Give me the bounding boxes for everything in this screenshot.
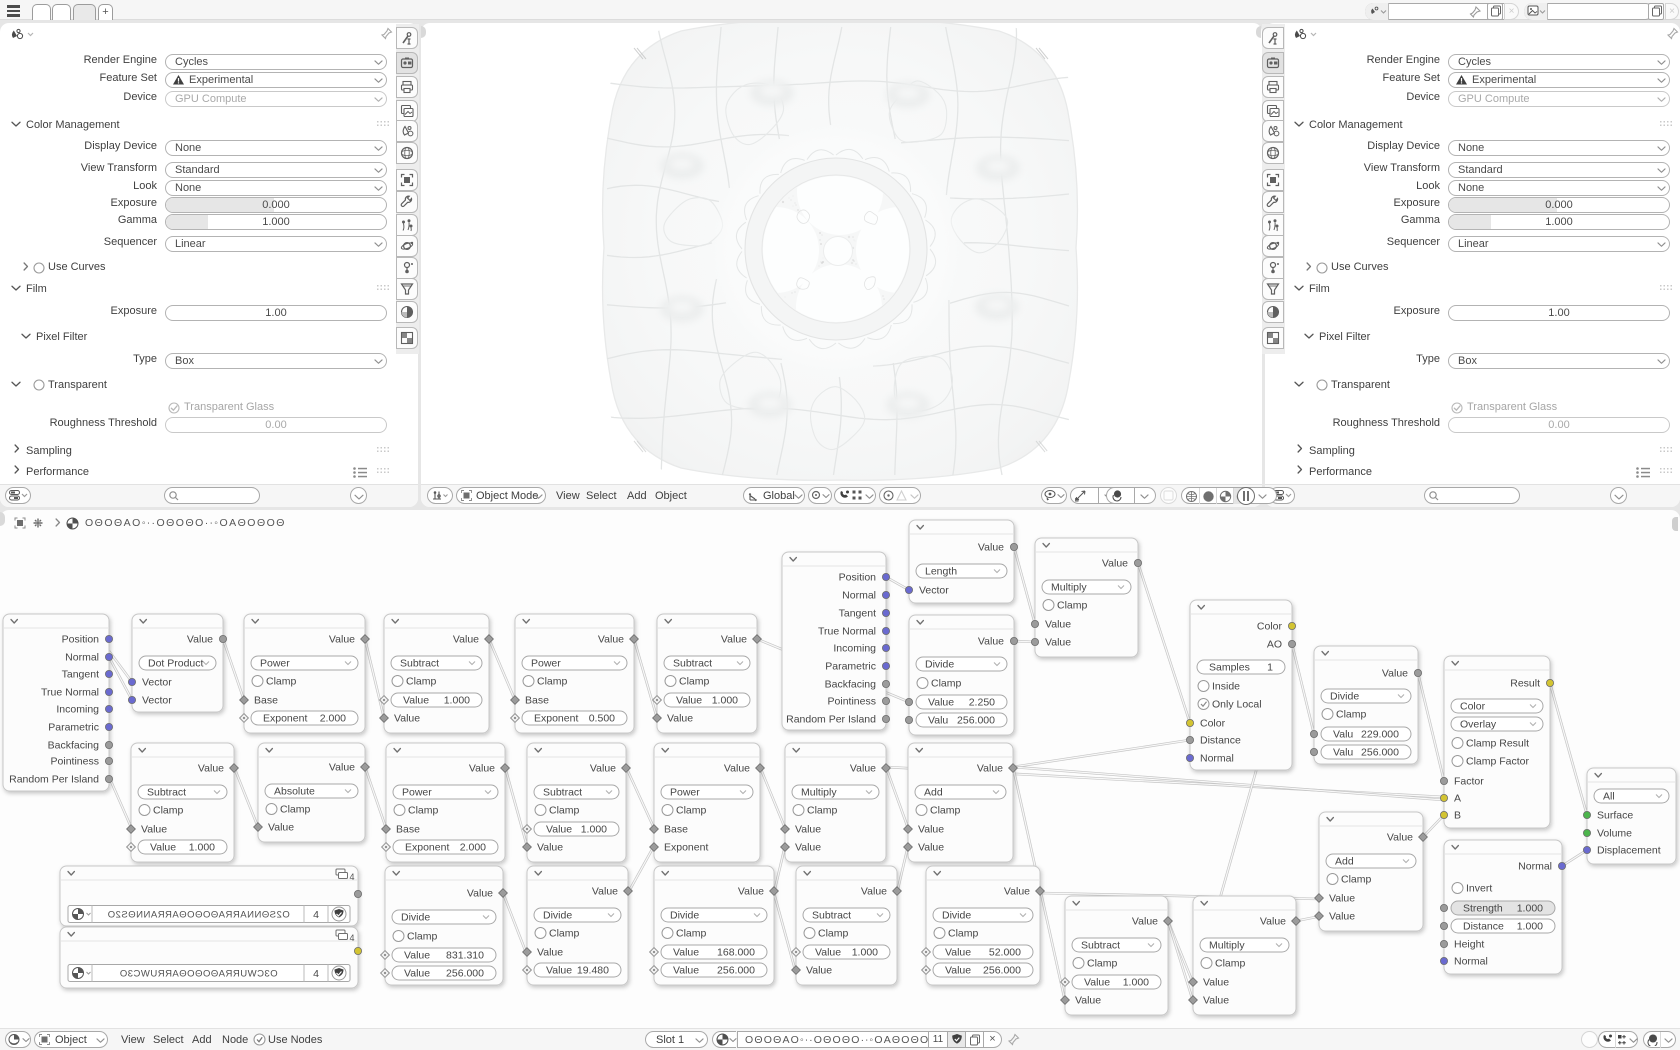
svg-text:Multiply: Multiply — [801, 787, 837, 799]
svg-text:Exponent: Exponent — [534, 713, 578, 725]
svg-text:4: 4 — [350, 933, 355, 943]
svg-text:Value: Value — [187, 634, 213, 646]
svg-text:Clamp: Clamp — [406, 676, 437, 688]
svg-text:Vector: Vector — [142, 695, 172, 707]
svg-text:Subtract: Subtract — [1081, 940, 1120, 952]
svg-text:1.000: 1.000 — [581, 824, 607, 836]
svg-text:Only Local: Only Local — [1212, 699, 1262, 711]
svg-text:Value: Value — [721, 634, 747, 646]
svg-text:2.000: 2.000 — [460, 842, 486, 854]
svg-text:Value: Value — [676, 695, 702, 707]
svg-text:Value: Value — [918, 842, 944, 854]
svg-text:Value: Value — [537, 947, 563, 959]
svg-text:Value: Value — [1382, 668, 1408, 680]
svg-text:Value: Value — [403, 695, 429, 707]
svg-text:Value: Value — [861, 886, 887, 898]
svg-text:Distance: Distance — [1463, 921, 1504, 933]
svg-text:Inside: Inside — [1212, 681, 1240, 693]
svg-text:Clamp: Clamp — [818, 928, 849, 940]
svg-text:2.000: 2.000 — [320, 713, 346, 725]
svg-text:Divide: Divide — [401, 912, 430, 924]
svg-text:Value: Value — [1075, 995, 1101, 1007]
svg-text:Value: Value — [1329, 893, 1355, 905]
svg-text:4: 4 — [350, 872, 355, 882]
svg-text:Vector: Vector — [919, 585, 949, 597]
svg-text:Value: Value — [815, 947, 841, 959]
svg-text:Subtract: Subtract — [147, 787, 186, 799]
svg-text:Power: Power — [402, 787, 432, 799]
svg-text:Clamp Factor: Clamp Factor — [1466, 756, 1530, 768]
svg-text:Value: Value — [977, 763, 1003, 775]
svg-text:Strength: Strength — [1463, 903, 1503, 915]
svg-text:831.310: 831.310 — [446, 950, 484, 962]
svg-text:Value: Value — [546, 965, 572, 977]
svg-text:Absolute: Absolute — [274, 786, 315, 798]
svg-text:Value: Value — [404, 968, 430, 980]
svg-text:Overlay: Overlay — [1460, 719, 1497, 731]
svg-text:Clamp: Clamp — [1087, 958, 1118, 970]
svg-text:Value: Value — [546, 824, 572, 836]
svg-text:Value: Value — [1329, 911, 1355, 923]
svg-text:Valu: Valu — [1333, 729, 1353, 741]
svg-text:1.000: 1.000 — [712, 695, 738, 707]
svg-text:Value: Value — [453, 634, 479, 646]
svg-text:Power: Power — [260, 658, 290, 670]
svg-text:Color: Color — [1257, 621, 1283, 633]
svg-text:Value: Value — [850, 763, 876, 775]
svg-text:Exponent: Exponent — [405, 842, 449, 854]
svg-text:Vector: Vector — [142, 677, 172, 689]
svg-text:AO: AO — [1267, 639, 1282, 651]
svg-text:Invert: Invert — [1466, 883, 1492, 895]
svg-text:Incoming: Incoming — [833, 643, 876, 655]
svg-text:Divide: Divide — [925, 659, 954, 671]
svg-text:Height: Height — [1454, 939, 1484, 951]
svg-text:Clamp: Clamp — [1336, 709, 1367, 721]
svg-text:Value: Value — [795, 824, 821, 836]
svg-text:256.000: 256.000 — [717, 965, 755, 977]
svg-text:Value: Value — [329, 634, 355, 646]
svg-text:Normal: Normal — [842, 590, 876, 602]
svg-text:Add: Add — [924, 787, 943, 799]
svg-text:Position: Position — [839, 572, 877, 584]
svg-text:Clamp: Clamp — [266, 676, 297, 688]
svg-text:256.000: 256.000 — [446, 968, 484, 980]
svg-text:Clamp: Clamp — [807, 805, 838, 817]
svg-text:Clamp: Clamp — [676, 805, 707, 817]
svg-text:Clamp: Clamp — [1057, 600, 1088, 612]
svg-text:Exponent: Exponent — [263, 713, 307, 725]
svg-text:Value: Value — [394, 713, 420, 725]
svg-text:Value: Value — [1045, 619, 1071, 631]
svg-text:2.250: 2.250 — [969, 697, 995, 709]
svg-text:Value: Value — [795, 842, 821, 854]
svg-text:1: 1 — [1267, 662, 1273, 674]
svg-text:Random Per Island: Random Per Island — [786, 714, 876, 726]
svg-text:Value: Value — [1004, 886, 1030, 898]
svg-text:O2SΘNNARRAΘOΘOΘARRANNΘS2O: O2SΘNNARRAΘOΘOΘARRANNΘS2O — [107, 910, 289, 921]
svg-text:1.000: 1.000 — [444, 695, 470, 707]
svg-text:Value: Value — [1260, 916, 1286, 928]
svg-text:Value: Value — [724, 763, 750, 775]
svg-text:Divide: Divide — [543, 910, 572, 922]
svg-text:Base: Base — [664, 824, 688, 836]
svg-text:Clamp: Clamp — [408, 805, 439, 817]
svg-text:Clamp: Clamp — [1341, 874, 1372, 886]
svg-text:Subtract: Subtract — [543, 787, 582, 799]
svg-text:Samples: Samples — [1209, 662, 1250, 674]
svg-text:Value: Value — [673, 965, 699, 977]
svg-text:Valu: Valu — [928, 715, 948, 727]
svg-text:Value: Value — [918, 824, 944, 836]
svg-text:True Normal: True Normal — [818, 626, 876, 638]
svg-text:Value: Value — [198, 763, 224, 775]
svg-text:Value: Value — [738, 886, 764, 898]
svg-text:Color: Color — [1200, 718, 1226, 730]
svg-text:Parametric: Parametric — [48, 722, 99, 734]
svg-text:Value: Value — [150, 842, 176, 854]
svg-text:Value: Value — [945, 965, 971, 977]
svg-text:Clamp: Clamp — [1215, 958, 1246, 970]
svg-text:Divide: Divide — [1330, 691, 1359, 703]
svg-text:Base: Base — [254, 695, 278, 707]
svg-text:Value: Value — [141, 824, 167, 836]
svg-text:Result: Result — [1510, 678, 1540, 690]
svg-text:256.000: 256.000 — [1361, 747, 1399, 759]
svg-text:168.000: 168.000 — [717, 947, 755, 959]
svg-text:Pointiness: Pointiness — [51, 756, 99, 768]
svg-text:Clamp Result: Clamp Result — [1466, 738, 1529, 750]
svg-text:Clamp: Clamp — [930, 805, 961, 817]
svg-text:Surface: Surface — [1597, 810, 1633, 822]
svg-text:Color: Color — [1460, 701, 1486, 713]
svg-text:Parametric: Parametric — [825, 661, 876, 673]
svg-text:Clamp: Clamp — [407, 931, 438, 943]
svg-text:Value: Value — [1132, 916, 1158, 928]
svg-text:Value: Value — [1203, 995, 1229, 1007]
svg-text:52.000: 52.000 — [989, 947, 1021, 959]
svg-text:Backfacing: Backfacing — [48, 740, 100, 752]
svg-text:Clamp: Clamp — [676, 928, 707, 940]
svg-text:1.000: 1.000 — [852, 947, 878, 959]
svg-text:Value: Value — [329, 762, 355, 774]
svg-text:Normal: Normal — [1518, 861, 1552, 873]
svg-text:19.480: 19.480 — [577, 965, 609, 977]
svg-text:Value: Value — [590, 763, 616, 775]
svg-text:Clamp: Clamp — [931, 678, 962, 690]
svg-text:Divide: Divide — [670, 910, 699, 922]
svg-text:Power: Power — [531, 658, 561, 670]
svg-text:Value: Value — [1084, 977, 1110, 989]
svg-text:Exponent: Exponent — [664, 842, 708, 854]
svg-text:Value: Value — [592, 886, 618, 898]
svg-text:Clamp: Clamp — [537, 676, 568, 688]
svg-text:Value: Value — [1387, 832, 1413, 844]
svg-text:Factor: Factor — [1454, 776, 1484, 788]
svg-text:O3CWURRAΘOΘOΘARRUWC3O: O3CWURRAΘOΘOΘARRUWC3O — [119, 969, 277, 980]
svg-text:Value: Value — [667, 713, 693, 725]
svg-text:Value: Value — [1203, 977, 1229, 989]
svg-text:Value: Value — [268, 822, 294, 834]
svg-text:1.000: 1.000 — [1517, 903, 1543, 915]
svg-text:Clamp: Clamp — [280, 804, 311, 816]
svg-text:Clamp: Clamp — [679, 676, 710, 688]
svg-text:A: A — [1454, 793, 1461, 805]
svg-text:Value: Value — [673, 947, 699, 959]
svg-text:Dot Product: Dot Product — [148, 658, 204, 670]
svg-text:Displacement: Displacement — [1597, 845, 1661, 857]
svg-text:Subtract: Subtract — [400, 658, 439, 670]
svg-text:All: All — [1603, 791, 1615, 803]
svg-text:Multiply: Multiply — [1209, 940, 1245, 952]
svg-text:Clamp: Clamp — [153, 805, 184, 817]
svg-text:Base: Base — [525, 695, 549, 707]
svg-text:256.000: 256.000 — [957, 715, 995, 727]
svg-text:1.000: 1.000 — [189, 842, 215, 854]
svg-text:Value: Value — [1045, 637, 1071, 649]
svg-text:Length: Length — [925, 566, 957, 578]
svg-text:Value: Value — [945, 947, 971, 959]
svg-text:Add: Add — [1335, 856, 1354, 868]
svg-text:1.000: 1.000 — [1517, 921, 1543, 933]
svg-text:229.000: 229.000 — [1361, 729, 1399, 741]
svg-text:Value: Value — [537, 842, 563, 854]
svg-text:True Normal: True Normal — [41, 687, 99, 699]
svg-text:B: B — [1454, 810, 1461, 822]
svg-text:Value: Value — [928, 697, 954, 709]
svg-text:Value: Value — [806, 965, 832, 977]
svg-text:Subtract: Subtract — [673, 658, 712, 670]
svg-text:Normal: Normal — [65, 652, 99, 664]
svg-text:Pointiness: Pointiness — [828, 696, 876, 708]
svg-text:Tangent: Tangent — [839, 608, 876, 620]
svg-text:Value: Value — [978, 636, 1004, 648]
svg-text:1.000: 1.000 — [1123, 977, 1149, 989]
svg-text:Valu: Valu — [1333, 747, 1353, 759]
svg-text:Random Per Island: Random Per Island — [9, 774, 99, 786]
svg-text:4: 4 — [313, 968, 319, 980]
svg-text:256.000: 256.000 — [983, 965, 1021, 977]
svg-text:Normal: Normal — [1454, 956, 1488, 968]
svg-text:Subtract: Subtract — [812, 910, 851, 922]
svg-text:4: 4 — [313, 909, 319, 921]
svg-text:Multiply: Multiply — [1051, 582, 1087, 594]
svg-text:Position: Position — [62, 634, 100, 646]
svg-text:Tangent: Tangent — [62, 669, 99, 681]
svg-text:0.500: 0.500 — [589, 713, 615, 725]
svg-text:Normal: Normal — [1200, 753, 1234, 765]
svg-text:Value: Value — [404, 950, 430, 962]
svg-text:Distance: Distance — [1200, 735, 1241, 747]
svg-text:Value: Value — [978, 542, 1004, 554]
svg-text:Clamp: Clamp — [549, 805, 580, 817]
svg-text:Power: Power — [670, 787, 700, 799]
svg-text:Value: Value — [467, 888, 493, 900]
svg-text:Clamp: Clamp — [549, 928, 580, 940]
svg-text:Backfacing: Backfacing — [825, 679, 877, 691]
svg-text:Base: Base — [396, 824, 420, 836]
svg-text:Value: Value — [1102, 558, 1128, 570]
svg-text:Value: Value — [598, 634, 624, 646]
svg-text:Value: Value — [469, 763, 495, 775]
svg-text:Volume: Volume — [1597, 828, 1632, 840]
svg-text:Clamp: Clamp — [948, 928, 979, 940]
svg-text:Divide: Divide — [942, 910, 971, 922]
svg-text:Incoming: Incoming — [56, 704, 99, 716]
